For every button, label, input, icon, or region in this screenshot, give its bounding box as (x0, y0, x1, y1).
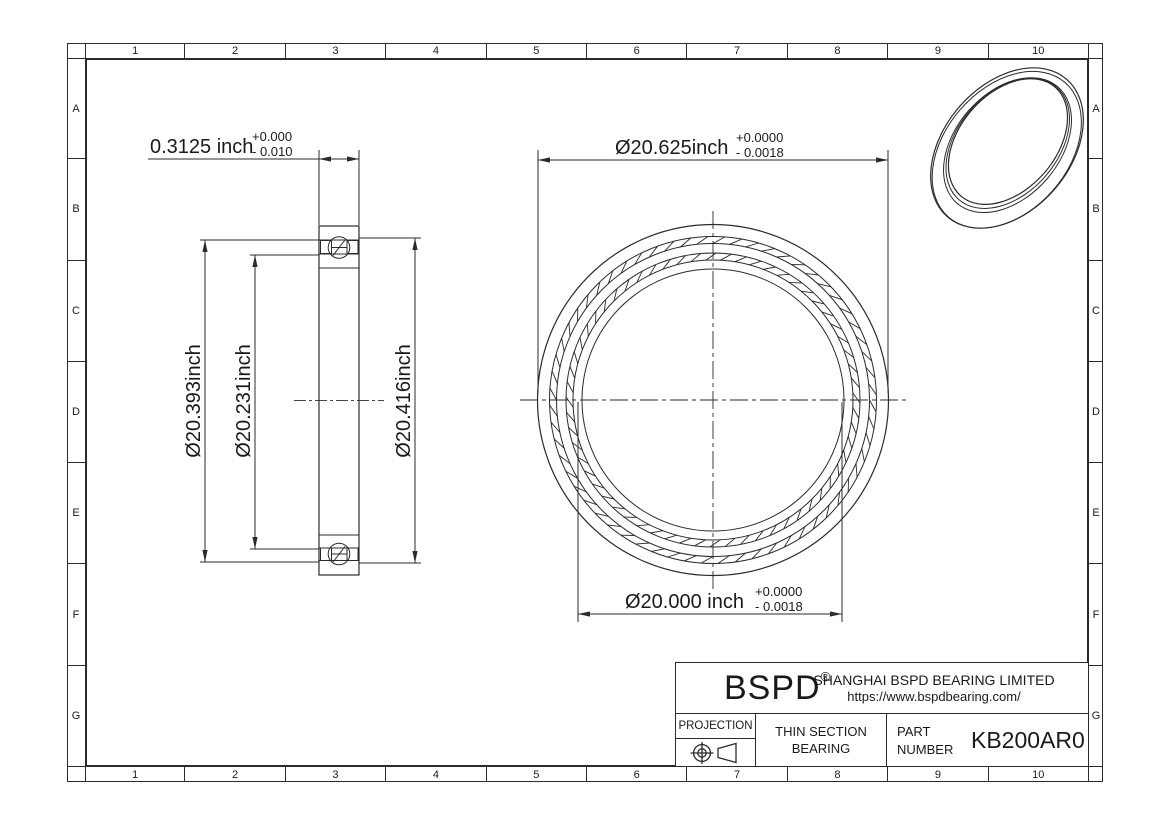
title-block-header: BSPD® SHANGHAI BSPD BEARING LIMITED http… (676, 663, 1088, 714)
bore-diameter-tol-upper: +0.0000 (755, 584, 802, 599)
projection-label: PROJECTION (676, 714, 755, 739)
outer-diameter-tol-lower: - 0.0018 (736, 145, 784, 160)
product-type-line2: BEARING (792, 740, 851, 758)
company-name: SHANGHAI BSPD BEARING LIMITED (794, 671, 1074, 689)
outer-race-diameter-label: Ø20.393inch (183, 344, 205, 457)
part-label-line2: NUMBER (897, 741, 953, 759)
section-width-tol-lower: - 0.010 (252, 144, 292, 159)
title-block: BSPD® SHANGHAI BSPD BEARING LIMITED http… (675, 662, 1089, 767)
bore-diameter-tol-lower: - 0.0018 (755, 599, 803, 614)
engineering-drawing-sheet: 1 2 3 4 5 6 7 8 9 10 1 2 3 4 5 6 7 8 9 1… (0, 0, 1170, 827)
section-width-tol-upper: +0.000 (252, 129, 292, 144)
outer-land-diameter-label: Ø20.416inch (393, 344, 415, 457)
projection-cell: PROJECTION (676, 714, 756, 767)
section-view (294, 226, 384, 575)
outer-diameter-tol-upper: +0.0000 (736, 130, 783, 145)
part-label-line1: PART (897, 723, 953, 741)
company-website: https://www.bspdbearing.com/ (794, 689, 1074, 706)
bearing-3d-render (900, 38, 1114, 258)
bore-diameter-value: Ø20.000 inch (625, 591, 744, 613)
company-info: SHANGHAI BSPD BEARING LIMITED https://ww… (794, 671, 1074, 706)
section-width-value: 0.3125 inch (150, 136, 253, 158)
outer-diameter-value: Ø20.625inch (615, 137, 728, 159)
part-number-label: PART NUMBER (897, 723, 953, 758)
first-angle-projection-icon (676, 739, 755, 766)
part-number-value: KB200AR0 (971, 727, 1085, 754)
inner-race-diameter-label: Ø20.231inch (233, 344, 255, 457)
part-number-cell: PART NUMBER KB200AR0 (887, 714, 1087, 767)
product-type-cell: THIN SECTION BEARING (756, 714, 887, 767)
section-width-dimension: 0.3125 inch +0.000 - 0.010 (148, 129, 359, 225)
product-type-line1: THIN SECTION (775, 723, 867, 741)
